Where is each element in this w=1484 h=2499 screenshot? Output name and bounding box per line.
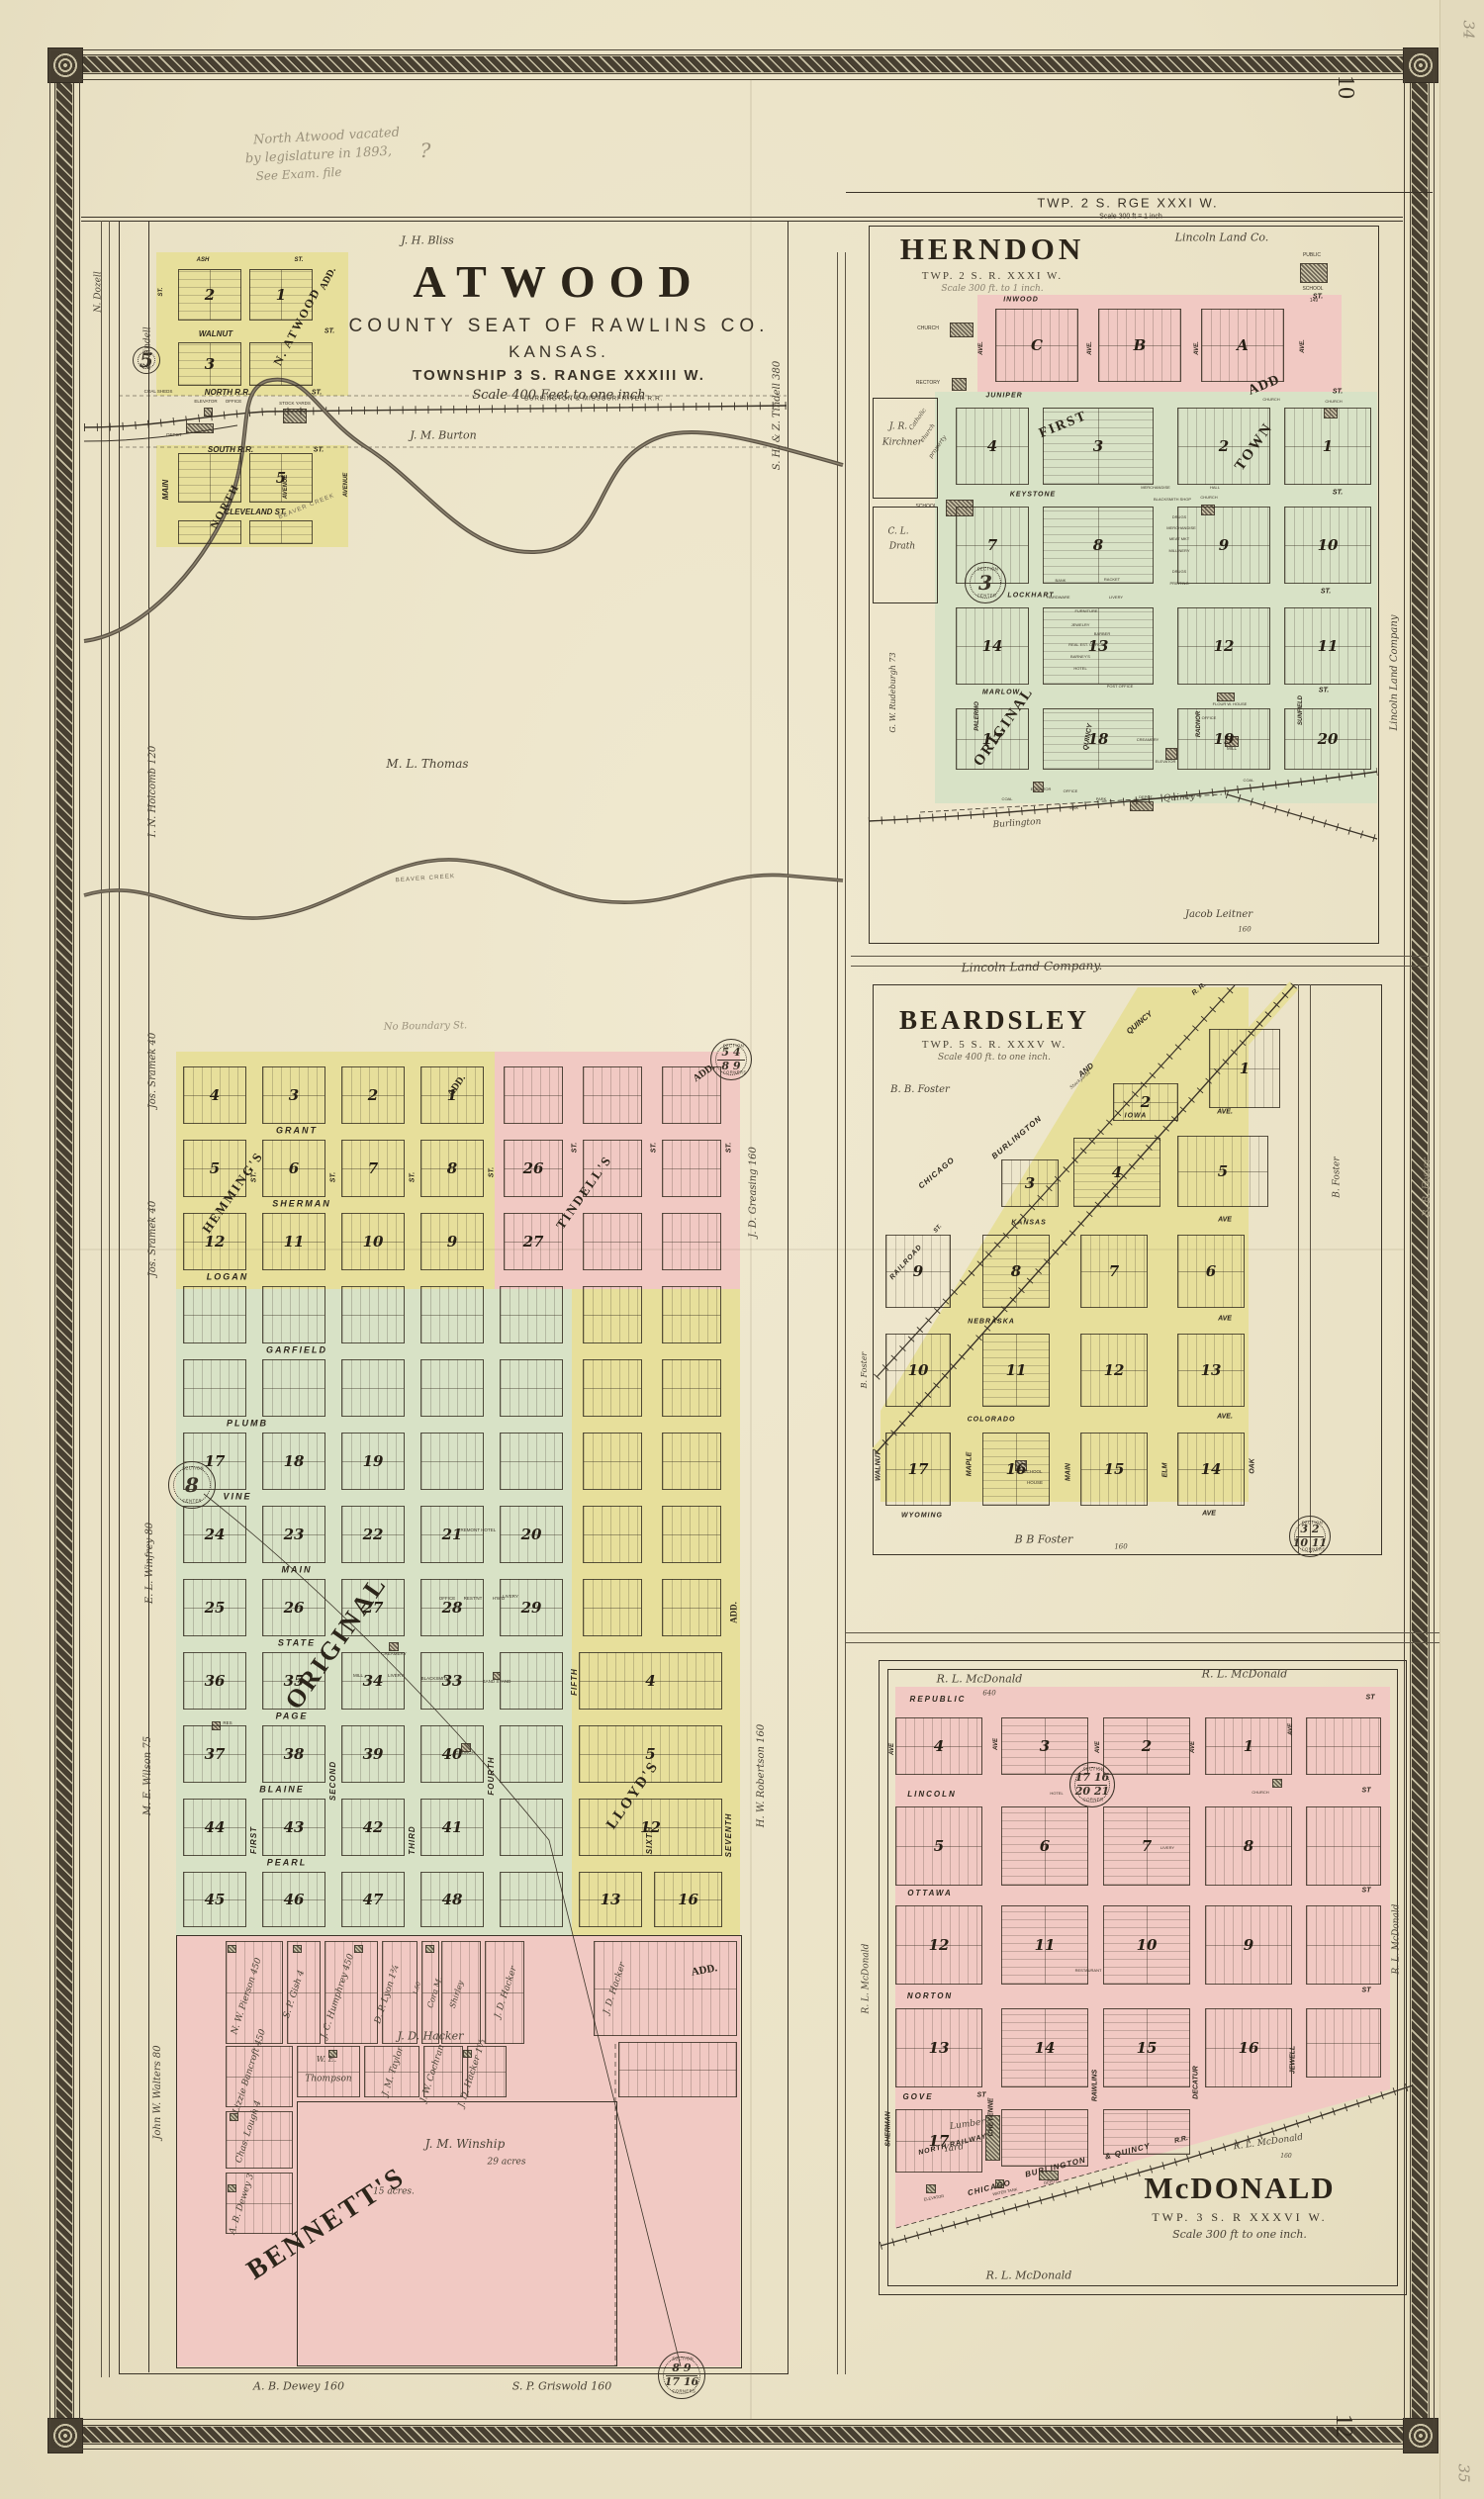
- block-39: 39: [341, 1725, 405, 1783]
- block-number: 5: [1218, 1164, 1228, 1179]
- block-6: 6: [1177, 1235, 1245, 1308]
- block: [618, 2042, 737, 2097]
- map-label: LIVERY: [388, 1674, 404, 1679]
- block-1: 1: [1284, 408, 1371, 485]
- section-corner-stamp: SECTION3CENTER: [965, 562, 1006, 603]
- map-label: BLACKSMITH: [421, 1677, 450, 1682]
- stamp-part: 5 4: [721, 1047, 740, 1059]
- block: [500, 1359, 563, 1417]
- map-label: ST: [1362, 1788, 1371, 1795]
- block-number: 4: [1112, 1165, 1122, 1180]
- atwood-township: TOWNSHIP 3 S. RANGE XXXIII W.: [349, 367, 770, 384]
- map-label: COAL: [1002, 797, 1013, 801]
- block-number: 6: [1206, 1264, 1216, 1279]
- map-label: B B Foster: [1015, 1534, 1073, 1545]
- block-number: 11: [1318, 639, 1339, 654]
- block-5: 5: [1177, 1136, 1268, 1207]
- block-number: 16: [1239, 2041, 1259, 2056]
- block-14: 14: [956, 607, 1029, 685]
- map-label: JEWELL: [1290, 2046, 1297, 2074]
- block-number: 13: [1201, 1363, 1222, 1378]
- map-label: J. M. Winship: [425, 2138, 506, 2150]
- map-label: CREAMERY: [1137, 738, 1159, 742]
- map-label: M. E. Wilson 75: [143, 1736, 153, 1815]
- map-label: 15 acres.: [373, 2188, 415, 2197]
- map-label: AVENUE: [343, 473, 349, 498]
- map-label: S. P. Griswold 160: [512, 2381, 612, 2392]
- map-label: SCHOOL: [1302, 287, 1323, 292]
- map-label: ST.: [314, 447, 324, 454]
- block-19: 19: [341, 1433, 405, 1490]
- map-label: HOUSE: [1027, 1481, 1043, 1486]
- map-label: PLUMB: [227, 1420, 268, 1429]
- block: [662, 1359, 721, 1417]
- block-34: 34: [341, 1652, 405, 1710]
- block-number: 8: [1093, 538, 1103, 553]
- map-label: HOTEL: [1050, 1792, 1063, 1796]
- block-number: 42: [363, 1820, 384, 1835]
- block-C: C: [995, 309, 1078, 382]
- mcdonald-title-block: McDONALD TWP. 3 S. R XXXVI W. Scale 300 …: [1144, 2171, 1335, 2241]
- block: [1306, 1806, 1381, 1886]
- block-18: 18: [262, 1433, 325, 1490]
- block-number: 15: [1104, 1462, 1125, 1477]
- block-3: 3: [1001, 1717, 1088, 1775]
- block: [583, 1066, 642, 1124]
- map-label: B. Foster: [861, 1352, 869, 1389]
- block-number: 20: [1318, 732, 1339, 747]
- map-label: LIVERY: [503, 1595, 518, 1600]
- block-number: 10: [1137, 1938, 1158, 1953]
- atwood-title: ATWOOD: [349, 255, 770, 308]
- map-label: DRUGS: [1172, 515, 1186, 519]
- map-label: ST.: [726, 1143, 733, 1153]
- map-label: SHERMAN: [272, 1200, 331, 1209]
- block-7: 7: [1080, 1235, 1148, 1308]
- block-11: 11: [262, 1213, 325, 1270]
- map-label: ELEVATOR: [1031, 787, 1052, 791]
- block-number: 4: [645, 1674, 655, 1689]
- block: [583, 1506, 642, 1563]
- block-number: C: [1031, 338, 1043, 353]
- block-number: 2: [1219, 439, 1229, 454]
- map-label: J. R.: [889, 423, 907, 432]
- block-14: 14: [1001, 2008, 1088, 2087]
- map-label: BAND STAND: [483, 1680, 511, 1685]
- block-number: 45: [205, 1893, 226, 1907]
- map-label: NORTH R.R.: [205, 389, 251, 397]
- map-label: DEPOT: [166, 433, 182, 438]
- block-number: 1: [1240, 1062, 1250, 1076]
- map-label: LIVERY: [1109, 596, 1123, 600]
- section-corner-stamp: 5: [133, 346, 160, 374]
- herndon-title: HERNDON: [900, 231, 1084, 267]
- map-label: JUNIPER: [985, 393, 1022, 400]
- block-number: 20: [521, 1527, 542, 1542]
- block: [420, 1286, 484, 1343]
- section-corner-stamp: SECTION3 210 11CORNERS: [1289, 1516, 1331, 1557]
- map-label: RAWLINS: [1092, 2070, 1099, 2101]
- block: [662, 1579, 721, 1636]
- section-corner-stamp: SECTION8 917 16CORNERS: [658, 2352, 705, 2399]
- block-7: 7: [1103, 1806, 1190, 1886]
- map-label: MAPLE: [967, 1452, 974, 1477]
- block-number: 1: [1323, 439, 1333, 454]
- map-label: ST: [1366, 1695, 1375, 1702]
- block-11: 11: [1284, 607, 1371, 685]
- block-number: 7: [987, 538, 997, 553]
- block-47: 47: [341, 1872, 405, 1927]
- map-label: KANSAS: [1011, 1220, 1047, 1227]
- block-number: 8: [1011, 1264, 1021, 1279]
- block-number: 46: [284, 1893, 305, 1907]
- map-label: AVE: [1218, 1217, 1232, 1224]
- block-2: 2: [341, 1066, 405, 1124]
- map-label: 29 acres: [488, 2159, 526, 2168]
- block-3: 3: [262, 1066, 325, 1124]
- map-label: ADD.: [730, 1602, 739, 1623]
- block-28: 28: [420, 1579, 484, 1636]
- map-label: CHURCH: [1325, 400, 1342, 404]
- herndon-township: TWP. 2 S. R. XXXI W.: [900, 270, 1084, 282]
- block-1: 1: [1209, 1029, 1280, 1108]
- stamp-part: 5: [139, 350, 153, 371]
- map-label: FURNITURE: [1074, 609, 1097, 613]
- map-label: MERCHANDISE: [1141, 486, 1170, 490]
- block-A: A: [1201, 309, 1284, 382]
- block-number: A: [1237, 338, 1249, 353]
- map-label: J. D. Hacker: [398, 2031, 464, 2042]
- block-12: 12: [1177, 607, 1270, 685]
- herndon-scale: Scale 300 ft. to 1 inch.: [900, 284, 1084, 294]
- block-number: 47: [363, 1893, 384, 1907]
- block: [583, 1213, 642, 1270]
- stamp-part: CORNER: [1083, 1798, 1101, 1803]
- map-label: Thompson: [305, 2076, 351, 2084]
- block-number: 14: [1035, 2041, 1056, 2056]
- atwood-rail-main: [84, 406, 787, 427]
- map-label: WALNUT: [876, 1451, 882, 1481]
- block-number: 19: [1214, 732, 1235, 747]
- section-corner-stamp: SECTION17 1620 21CORNER: [1069, 1762, 1115, 1807]
- block-number: 44: [205, 1820, 226, 1835]
- map-label: SIXTH: [646, 1826, 654, 1855]
- map-label: ST.: [410, 1172, 417, 1182]
- map-label: BANK: [1056, 579, 1067, 583]
- block-5: 5: [895, 1806, 982, 1886]
- block-number: 24: [205, 1527, 226, 1542]
- beardsley-title: BEARDSLEY: [899, 1005, 1089, 1036]
- map-label: ST.: [330, 1172, 337, 1182]
- map-label: AVE.: [1217, 1414, 1233, 1421]
- map-label: MARLOW: [982, 690, 1020, 696]
- atwood-state: KANSAS.: [349, 342, 770, 362]
- map-label: INWOOD: [1003, 297, 1039, 304]
- block-14: 14: [1177, 1433, 1245, 1506]
- block-37: 37: [183, 1725, 246, 1783]
- block: [583, 1359, 642, 1417]
- map-label: NORTON: [907, 1992, 953, 2000]
- block-number: 15: [1137, 2041, 1158, 2056]
- map-label: AVE: [1202, 1511, 1216, 1518]
- map-label: H. W. Robertson 160: [757, 1724, 767, 1828]
- beaver-creek-lower-hl: [84, 860, 843, 918]
- map-label: Kirchner: [882, 439, 922, 448]
- block-2: 2: [178, 269, 241, 321]
- block-42: 42: [341, 1799, 405, 1856]
- block: [1306, 1717, 1381, 1775]
- map-label: AVE.: [978, 341, 984, 355]
- block-number: 10: [363, 1235, 384, 1249]
- map-label: COLORADO: [968, 1417, 1016, 1424]
- block-number: 2: [205, 288, 215, 303]
- block-number: 3: [1093, 439, 1103, 454]
- block-number: 1: [1244, 1739, 1253, 1754]
- block: [583, 1286, 642, 1343]
- block: [420, 1359, 484, 1417]
- block-number: 7: [368, 1161, 378, 1176]
- map-label: ELEVATOR: [1156, 760, 1176, 764]
- map-label: COAL SHEDS: [144, 390, 173, 395]
- block-8: 8: [420, 1140, 484, 1197]
- block-number: 27: [523, 1235, 544, 1249]
- map-label: LIVERY: [1160, 1846, 1174, 1850]
- map-label: C. L.: [887, 528, 908, 537]
- block-10: 10: [1284, 507, 1371, 584]
- block: [662, 1286, 721, 1343]
- block-number: 26: [284, 1601, 305, 1616]
- block-number: 9: [913, 1264, 923, 1279]
- block-number: 25: [205, 1601, 226, 1616]
- map-label: ST.: [651, 1143, 658, 1153]
- map-label: 160: [1114, 1544, 1127, 1551]
- map-label: ST.: [1313, 294, 1323, 301]
- block-number: 26: [523, 1161, 544, 1176]
- block-number: 34: [363, 1674, 384, 1689]
- mcdonald-township: TWP. 3 S. R XXXVI W.: [1144, 2210, 1335, 2225]
- map-label: GARFIELD: [266, 1346, 327, 1355]
- block-4: 4: [183, 1066, 246, 1124]
- block: [341, 1359, 405, 1417]
- block-22: 22: [341, 1506, 405, 1563]
- stamp-part: CORNERS: [723, 1070, 740, 1075]
- block-6: 6: [1001, 1806, 1088, 1886]
- map-label: CHURCH: [1262, 398, 1279, 402]
- block-number: 3: [1025, 1176, 1035, 1191]
- map-label: MILL: [353, 1674, 363, 1679]
- herndon-title-block: HERNDON TWP. 2 S. R. XXXI W. Scale 300 f…: [900, 231, 1084, 294]
- block: [341, 1286, 405, 1343]
- block-10: 10: [885, 1334, 951, 1407]
- block-number: 11: [1006, 1363, 1027, 1378]
- block: [583, 1433, 642, 1490]
- block: [662, 1433, 721, 1490]
- map-label: OFFICE: [1064, 789, 1078, 793]
- herndon-rail-branch: [1227, 794, 1377, 839]
- block-number: 29: [521, 1601, 542, 1616]
- map-label: B. Foster: [1334, 1157, 1343, 1197]
- map-label: R. L. McDonald: [1393, 1904, 1402, 1975]
- stamp-part: SECTION: [672, 2357, 691, 2361]
- map-label: FIRST: [250, 1826, 258, 1854]
- map-label: R. L. McDonald: [937, 1674, 1023, 1685]
- block-number: 1: [276, 288, 286, 303]
- map-label: 12: [1332, 2414, 1355, 2438]
- block-number: 19: [363, 1454, 384, 1469]
- block-number: 4: [934, 1739, 944, 1754]
- block-16: 16: [1205, 2008, 1292, 2087]
- map-label: THIRD: [409, 1825, 417, 1854]
- block-3: 3: [178, 342, 241, 386]
- block-number: 6: [1040, 1839, 1050, 1854]
- section-corner-stamp: SECTION5 48 9CORNERS: [710, 1039, 752, 1080]
- stamp-part: 17 16: [1075, 1772, 1109, 1784]
- block-25: 25: [183, 1579, 246, 1636]
- map-label: Lincoln Land Company.: [962, 960, 1103, 973]
- block-24: 24: [183, 1506, 246, 1563]
- block-number: 41: [442, 1820, 463, 1835]
- map-label: REPUBLIC: [910, 1696, 967, 1704]
- map-label: SCHOOL: [1023, 1470, 1042, 1475]
- block-number: 3: [205, 357, 215, 372]
- map-label: GRANT: [276, 1127, 318, 1136]
- map-label: MAIN: [162, 480, 170, 500]
- block-number: 48: [442, 1893, 463, 1907]
- map-label: CHURCH: [455, 1751, 475, 1756]
- map-label: TWP. 2 S. RGE XXXI W.: [1037, 197, 1218, 210]
- map-label: RESTAURANT: [1075, 1969, 1102, 1973]
- map-label: FLOUR W. HOUSE: [1213, 702, 1248, 706]
- map-label: AVE: [1288, 1723, 1294, 1735]
- block: [500, 1799, 563, 1856]
- map-label: ST.: [489, 1167, 496, 1177]
- map-label: ?: [420, 140, 431, 160]
- block-number: 3: [289, 1088, 299, 1103]
- map-label: JEWELRY: [1071, 623, 1090, 627]
- map-label: AVE.: [1300, 339, 1306, 353]
- block-38: 38: [262, 1725, 325, 1783]
- beardsley-title-block: BEARDSLEY TWP. 5 S. R. XXXV W. Scale 400…: [899, 1005, 1089, 1063]
- map-label: Drath: [889, 543, 915, 552]
- map-label: ST: [1362, 1988, 1371, 1994]
- map-label: CHURCH: [917, 326, 939, 331]
- map-label: J. H. Bliss: [401, 235, 454, 246]
- block-number: 36: [205, 1674, 226, 1689]
- map-label: MERCHANDISE: [1166, 526, 1196, 530]
- atwood-title-block: ATWOOD COUNTY SEAT OF RAWLINS CO. KANSAS…: [349, 255, 770, 403]
- map-label: DECATUR: [1193, 2066, 1200, 2099]
- block-number: B: [1134, 338, 1147, 353]
- block-12: 12: [1080, 1334, 1148, 1407]
- map-label: WYOMING: [901, 1513, 943, 1520]
- block: [297, 2046, 360, 2097]
- block-4: 4: [895, 1717, 982, 1775]
- block-number: 4: [987, 439, 997, 454]
- map-label: SCHOOL: [915, 505, 936, 509]
- map-label: SUNFIELD: [1298, 695, 1304, 725]
- block-6: 6: [262, 1140, 325, 1197]
- atwood-rail-main: [84, 406, 787, 427]
- block-8: 8: [1205, 1806, 1292, 1886]
- stamp-part: 20 21: [1075, 1786, 1109, 1798]
- map-label: PEARL: [267, 1859, 308, 1868]
- stamp-part: 17 16: [665, 2376, 698, 2388]
- map-label: WALNUT: [199, 330, 232, 338]
- map-label: R. L. McDonald: [863, 1944, 872, 2014]
- block: [183, 1359, 246, 1417]
- block-number: 8: [1244, 1839, 1253, 1854]
- map-label: R. L. McDonald: [1202, 1669, 1288, 1680]
- block-16: 16: [654, 1872, 722, 1927]
- block-13: 13: [1177, 1334, 1245, 1407]
- map-label: ASH: [197, 257, 210, 263]
- block-number: 9: [1219, 538, 1229, 553]
- atwood-rail-spur: [84, 425, 237, 441]
- block-1: 1: [1205, 1717, 1292, 1775]
- map-label: B. B. Foster: [1423, 1157, 1433, 1217]
- atwood-scale: Scale 400 Feet to one inch: [349, 388, 770, 403]
- map-label: R. L. McDonald: [986, 2270, 1072, 2281]
- map-label: AVE.: [1194, 341, 1200, 355]
- block-number: 2: [1142, 1739, 1152, 1754]
- map-label: LINCOLN: [907, 1791, 957, 1799]
- map-label: 35: [1456, 2463, 1471, 2482]
- stamp-part: CORNERS: [1302, 1547, 1319, 1552]
- map-label: AVE.: [1087, 341, 1093, 355]
- map-label: PALERMO: [974, 701, 980, 731]
- block-number: 4: [210, 1088, 220, 1103]
- block-11: 11: [1001, 1905, 1088, 1985]
- stamp-part: CENTER: [182, 1499, 201, 1504]
- map-label: AVE.: [1217, 1109, 1233, 1116]
- map-label: ST.: [572, 1143, 579, 1153]
- block-B: B: [1098, 309, 1181, 382]
- map-label: Scale 300 ft = 1 inch: [1099, 214, 1162, 221]
- block: [504, 1066, 563, 1124]
- map-label: MILL: [1227, 747, 1237, 752]
- map-label: I. N. Holcomb 120: [148, 746, 158, 838]
- map-label: W. E.: [317, 2056, 336, 2064]
- map-label: BARBER: [1094, 632, 1110, 636]
- map-label: E. L. Winfrey 80: [145, 1523, 155, 1604]
- block-4: 4: [1073, 1138, 1160, 1207]
- block: [500, 1286, 563, 1343]
- map-label: PARK: [1096, 797, 1107, 801]
- block-number: 8: [447, 1161, 457, 1176]
- map-label: OAK: [1250, 1458, 1256, 1474]
- block-23: 23: [262, 1506, 325, 1563]
- map-label: BLACKSMITH SHOP: [1154, 498, 1191, 502]
- map-label: 640: [982, 1691, 995, 1698]
- atlas-page: 2135432156782612111092717181924232221202…: [0, 0, 1484, 2499]
- map-label: ST.: [1321, 589, 1331, 596]
- block-12: 12: [895, 1905, 982, 1985]
- map-label: AVE: [1095, 1741, 1101, 1753]
- block: [662, 1140, 721, 1197]
- map-label: ST.: [1333, 389, 1343, 396]
- map-label: MAIN: [282, 1566, 313, 1575]
- map-label: REAL EST. OFFICE: [1068, 643, 1104, 647]
- block-15: 15: [1103, 2008, 1190, 2087]
- map-label: OFFICE: [226, 400, 242, 405]
- block-number: 38: [284, 1747, 305, 1762]
- map-label: TREMONT HOTEL: [458, 1528, 496, 1533]
- block-number: 12: [1104, 1363, 1125, 1378]
- map-label: Jacob Leitner: [1185, 910, 1252, 920]
- block-number: 13: [601, 1893, 621, 1907]
- map-label: SOUTH R.R.: [208, 446, 253, 454]
- herndon-rail: [869, 772, 1377, 821]
